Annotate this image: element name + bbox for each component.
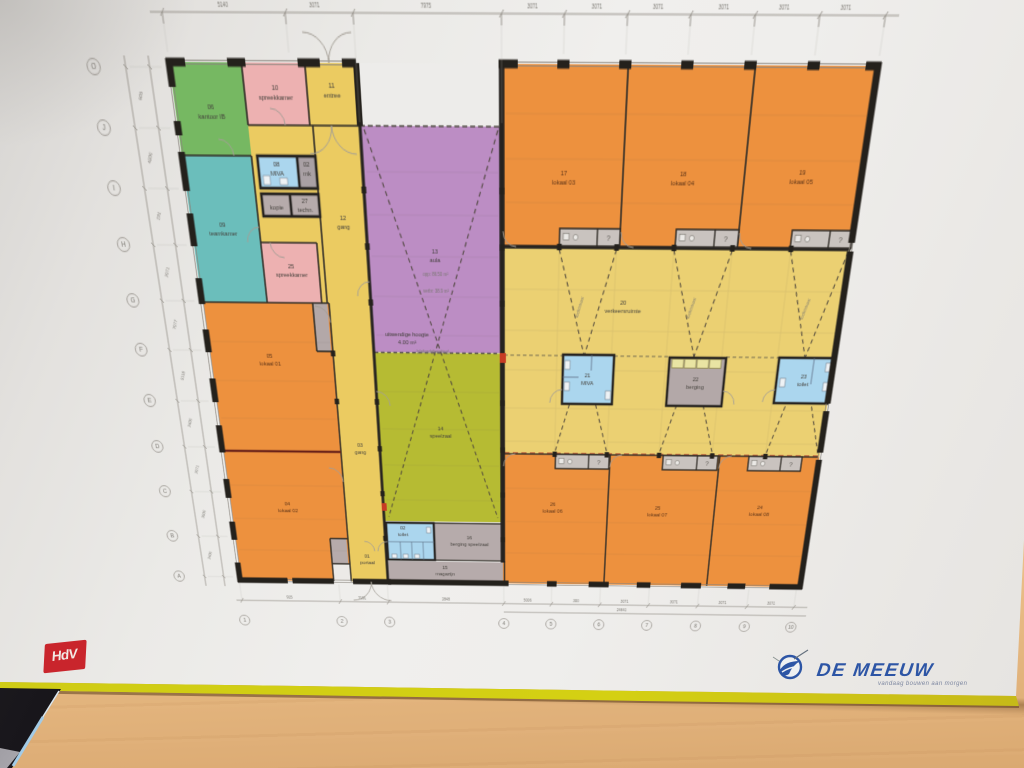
svg-text:24641: 24641 <box>617 609 627 613</box>
svg-text:10: 10 <box>271 83 279 92</box>
svg-text:kantoor IB: kantoor IB <box>198 112 226 121</box>
svg-text:lokaal 07: lokaal 07 <box>647 511 667 517</box>
svg-text:7977: 7977 <box>173 319 179 330</box>
svg-text:lokaal 06: lokaal 06 <box>543 508 563 515</box>
svg-text:entree: entree <box>323 91 341 100</box>
svg-text:08: 08 <box>273 160 280 169</box>
svg-text:06: 06 <box>207 102 215 111</box>
svg-text:01: 01 <box>364 553 370 559</box>
svg-text:B: B <box>170 533 175 539</box>
svg-text:E: E <box>147 397 152 404</box>
svg-text:?: ? <box>597 459 601 466</box>
svg-text:03: 03 <box>357 442 363 449</box>
svg-text:24: 24 <box>757 504 763 510</box>
svg-text:7191: 7191 <box>358 597 366 601</box>
svg-text:berging: berging <box>686 383 704 390</box>
svg-text:gang: gang <box>337 223 350 231</box>
svg-text:magazijn: magazijn <box>435 571 454 577</box>
svg-text:3071: 3071 <box>620 600 628 604</box>
svg-text:toilet: toilet <box>797 381 809 388</box>
svg-text:18: 18 <box>680 170 687 179</box>
svg-text:4: 4 <box>502 621 505 627</box>
svg-text:?: ? <box>607 234 611 243</box>
svg-text:speelzaal: speelzaal <box>430 432 452 439</box>
svg-text:11: 11 <box>328 81 335 90</box>
svg-text:8: 8 <box>694 623 698 629</box>
svg-text:09: 09 <box>219 221 226 229</box>
svg-text:12: 12 <box>339 214 346 222</box>
svg-text:5: 5 <box>549 622 552 628</box>
svg-text:1: 1 <box>243 618 247 624</box>
svg-text:7975: 7975 <box>421 4 432 11</box>
svg-text:lokaal 08: lokaal 08 <box>749 511 770 518</box>
svg-text:3071: 3071 <box>670 601 678 605</box>
svg-text:H: H <box>121 241 127 249</box>
svg-text:G: G <box>130 297 136 305</box>
svg-text:spreekkamer: spreekkamer <box>275 271 308 279</box>
svg-text:16: 16 <box>467 535 473 541</box>
svg-text:15: 15 <box>442 564 448 570</box>
svg-text:lokaal 04: lokaal 04 <box>671 179 695 188</box>
svg-text:02: 02 <box>400 525 406 531</box>
svg-text:2971: 2971 <box>195 465 201 475</box>
svg-text:14: 14 <box>438 425 444 432</box>
svg-text:2400: 2400 <box>208 551 214 560</box>
svg-text:02: 02 <box>303 160 310 169</box>
svg-text:5006: 5006 <box>524 599 532 603</box>
svg-text:3071: 3071 <box>592 4 603 11</box>
svg-text:lokaal 02: lokaal 02 <box>278 507 298 513</box>
svg-text:7: 7 <box>645 623 648 629</box>
svg-text:I: I <box>113 184 116 192</box>
svg-text:3071: 3071 <box>767 602 776 606</box>
svg-text:9: 9 <box>742 624 746 630</box>
svg-text:23: 23 <box>800 373 807 380</box>
svg-text:6: 6 <box>597 622 600 628</box>
svg-text:kopie: kopie <box>270 203 284 211</box>
svg-text:300: 300 <box>573 600 579 604</box>
svg-text:techn.: techn. <box>297 206 313 214</box>
svg-text:17: 17 <box>561 169 568 178</box>
svg-text:2848: 2848 <box>442 598 450 602</box>
svg-text:21: 21 <box>584 372 590 379</box>
svg-text:A: A <box>177 573 182 579</box>
svg-text:J: J <box>102 124 107 133</box>
svg-text:MIVA: MIVA <box>581 379 594 386</box>
svg-text:04: 04 <box>284 500 290 506</box>
svg-text:5140: 5140 <box>217 3 228 10</box>
svg-text:4.00 m¹: 4.00 m¹ <box>398 338 417 346</box>
svg-text:2971: 2971 <box>165 266 171 278</box>
svg-text:lokaal 01: lokaal 01 <box>259 360 281 367</box>
svg-text:aula: aula <box>430 256 442 264</box>
svg-text:3071: 3071 <box>653 5 664 12</box>
svg-text:lokaal 05: lokaal 05 <box>789 177 813 186</box>
svg-text:toilet: toilet <box>398 531 409 537</box>
svg-text:verbr: 38.9 m²: verbr: 38.9 m² <box>423 289 449 294</box>
svg-text:05: 05 <box>266 352 273 359</box>
svg-text:spreekkamer: spreekkamer <box>258 93 294 102</box>
svg-text:20: 20 <box>620 299 627 307</box>
svg-text:2: 2 <box>340 619 343 625</box>
svg-text:(plafondafwerking): (plafondafwerking) <box>416 350 449 355</box>
svg-text:25: 25 <box>655 505 661 511</box>
svg-text:portaal: portaal <box>360 559 375 565</box>
svg-text:3600: 3600 <box>201 510 207 519</box>
svg-text:13: 13 <box>432 247 438 255</box>
svg-text:3071: 3071 <box>718 5 729 12</box>
svg-text:5118: 5118 <box>180 371 186 381</box>
svg-text:3071: 3071 <box>779 5 790 12</box>
svg-text:C: C <box>163 488 168 494</box>
svg-text:915: 915 <box>286 596 292 600</box>
svg-text:mk: mk <box>303 169 312 178</box>
svg-text:D: D <box>155 443 160 450</box>
svg-text:19: 19 <box>799 168 807 177</box>
svg-text:gang: gang <box>355 449 367 456</box>
svg-text:27: 27 <box>301 197 308 205</box>
svg-text:teamkamer: teamkamer <box>209 229 238 237</box>
svg-text:900: 900 <box>138 91 144 102</box>
svg-text:26: 26 <box>550 501 556 507</box>
svg-text:uitwendige hoogte: uitwendige hoogte <box>385 330 429 338</box>
svg-text:3: 3 <box>388 620 392 626</box>
svg-text:3071: 3071 <box>309 3 320 10</box>
svg-text:lokaal 03: lokaal 03 <box>552 178 575 187</box>
svg-text:opp: 86.50 m²: opp: 86.50 m² <box>423 272 449 277</box>
svg-text:10: 10 <box>788 625 795 631</box>
svg-text:F: F <box>139 346 144 353</box>
svg-text:3071: 3071 <box>840 6 851 13</box>
svg-text:MIVA: MIVA <box>270 169 285 178</box>
svg-text:3071: 3071 <box>718 601 726 605</box>
svg-text:berging speelzaal: berging speelzaal <box>450 541 489 548</box>
svg-text:4800: 4800 <box>147 152 153 165</box>
svg-text:291: 291 <box>156 211 162 221</box>
svg-text:O: O <box>90 62 97 71</box>
svg-text:22: 22 <box>692 376 699 383</box>
svg-text:25: 25 <box>288 262 295 270</box>
svg-text:3071: 3071 <box>527 4 537 11</box>
svg-text:2400: 2400 <box>188 418 194 428</box>
svg-text:verkeersruimte: verkeersruimte <box>604 307 641 315</box>
